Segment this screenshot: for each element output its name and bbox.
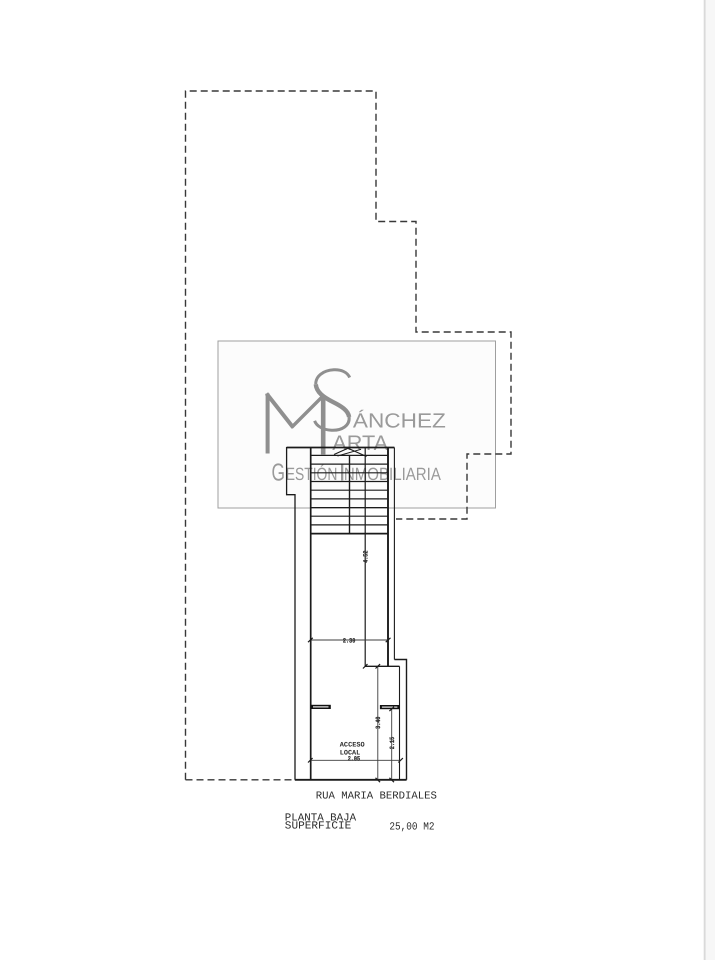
svg-text:ÁNCHEZ: ÁNCHEZ <box>353 410 446 433</box>
svg-text:2.30: 2.30 <box>343 637 355 644</box>
svg-text:25,00 M2: 25,00 M2 <box>389 821 434 833</box>
svg-text:RUA MARIA BERDIALES: RUA MARIA BERDIALES <box>316 791 437 803</box>
svg-text:NMOBILIARIA: NMOBILIARIA <box>344 464 441 484</box>
svg-text:4.52: 4.52 <box>363 550 370 562</box>
svg-text:LOCAL: LOCAL <box>340 750 360 758</box>
svg-text:ACCESO: ACCESO <box>340 742 365 750</box>
svg-text:3.40: 3.40 <box>375 716 382 728</box>
svg-text:2.15: 2.15 <box>389 737 396 749</box>
svg-text:G: G <box>272 460 286 487</box>
svg-text:SUPERFICIE: SUPERFICIE <box>285 821 352 833</box>
